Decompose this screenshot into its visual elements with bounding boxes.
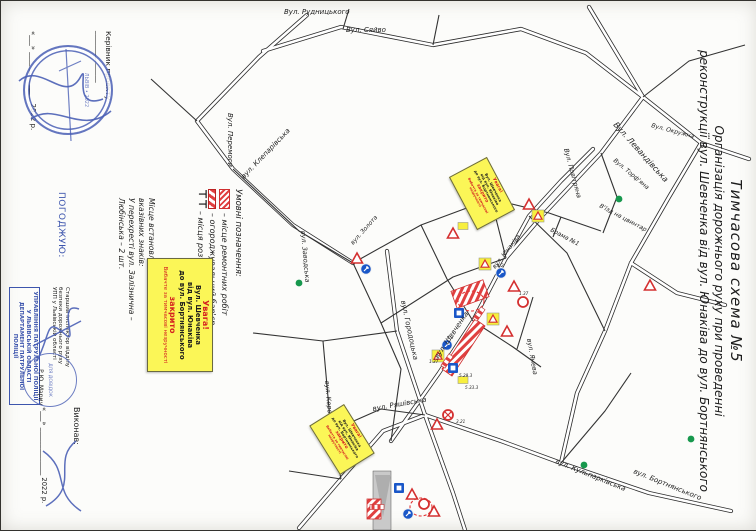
scheme-title: Тимчасова схема №5 bbox=[726, 36, 745, 506]
sign-code-label: 5.29.3 bbox=[459, 373, 473, 378]
round-seal-center-text: ЛЬВІВ • 2022 bbox=[47, 69, 89, 111]
sign-code-label: 1.37 bbox=[429, 359, 439, 364]
warning-box-legend: Увага!Вул. Шевченкавід вул. Юнаківадо ву… bbox=[147, 258, 213, 372]
traffic-sign-tw bbox=[509, 281, 520, 291]
sign-code-label: 4.2 bbox=[497, 263, 504, 268]
dovidok-round-stamp: ДЛЯ ДОВІДОК bbox=[23, 353, 77, 407]
traffic-sign-ty bbox=[532, 210, 544, 222]
street-label: Вул. Перемоги bbox=[226, 113, 234, 167]
legend-heading: Умовні позначення: bbox=[233, 189, 243, 339]
street-label: Брама №1 bbox=[549, 227, 580, 248]
traffic-sign-tw bbox=[429, 506, 440, 516]
traffic-sign-tw bbox=[645, 280, 656, 290]
street-label: вул. Кульпарківська bbox=[554, 457, 627, 493]
executor-date: «___» ______________ 2022 р. bbox=[40, 407, 48, 523]
sign-code-label: 4.2 bbox=[447, 335, 454, 340]
traffic-sign-tw bbox=[448, 228, 459, 238]
traffic-sign-ty bbox=[487, 313, 499, 325]
traffic-sign-tw bbox=[407, 489, 418, 499]
traffic-sign-sb bbox=[394, 483, 404, 493]
traffic-sign-cb bbox=[361, 264, 371, 274]
major-roads bbox=[197, 7, 749, 530]
round-seal-stamp: ЛЬВІВ • 2022 bbox=[23, 45, 113, 135]
sign-code-label: 5.33.3 bbox=[465, 385, 479, 390]
traffic-sign-tw bbox=[502, 326, 513, 336]
traffic-sign-gd bbox=[296, 280, 303, 287]
traffic-sign-tw bbox=[524, 199, 535, 209]
street-label: вул. Ряшівська bbox=[372, 396, 427, 413]
executor-block: Виконав: «___» ______________ 2022 р. bbox=[29, 407, 81, 523]
scheme-subtitle-1: Організація дорожнього руху при проведен… bbox=[711, 36, 726, 506]
traffic-sign-gd bbox=[616, 196, 623, 203]
traffic-sign-cb bbox=[496, 268, 506, 278]
warning-box-line: закрито bbox=[168, 259, 177, 371]
warning-box-line: Увага! bbox=[201, 259, 210, 371]
street-label: В'їзд на цвинтар bbox=[598, 203, 648, 234]
traffic-sign-cb bbox=[403, 509, 413, 519]
dz-symbol-icon bbox=[196, 189, 206, 207]
warning-box-line: Вибачте за тимчасові незручності bbox=[162, 259, 168, 371]
street-label: вул. Юнаківа bbox=[491, 233, 522, 270]
street-label: Вул. Сяйво bbox=[346, 26, 386, 34]
scheme-subtitle-2: реконструкції вул. Шевченка від вул. Юна… bbox=[696, 36, 711, 506]
street-label: Вул. Рудницького bbox=[284, 8, 350, 16]
legend-item-label: – місце ремонтних робіт bbox=[220, 213, 229, 315]
street-label: вул. Золота bbox=[349, 214, 379, 246]
scanned-traffic-scheme-page: Вул. РудницькогоВул. СяйвоВул. ПеремогиВ… bbox=[0, 0, 756, 531]
traffic-sign-ty bbox=[479, 258, 491, 270]
approval-label: ПОГОДЖУЮ: bbox=[50, 192, 66, 258]
street-label: вул. Заводська bbox=[299, 230, 311, 282]
traffic-sign-cx bbox=[443, 410, 453, 420]
warning-box-line: від вул. Юнаківа bbox=[185, 259, 193, 371]
sign-code-label: 1.37 bbox=[519, 291, 529, 296]
warning-box-line: до вул. Бортнянського bbox=[177, 259, 185, 371]
repair-symbol-icon bbox=[219, 189, 230, 209]
traffic-sign-cr bbox=[518, 297, 528, 307]
traffic-sign-bar bbox=[370, 505, 384, 510]
sign-code-label: 3.21 bbox=[456, 419, 466, 424]
executor-label: Виконав: bbox=[72, 407, 81, 523]
barrier-symbol-icon bbox=[209, 189, 217, 209]
warning-box-line: Вул. Шевченка bbox=[193, 259, 201, 371]
legend-item: – місце ремонтних робіт bbox=[219, 189, 230, 339]
street-label: вул. Клепарівська bbox=[240, 127, 292, 181]
traffic-sign-sb bbox=[448, 363, 458, 373]
scheme-title-block: Тимчасова схема №5 Організація дорожньог… bbox=[681, 36, 745, 506]
traffic-sign-cr bbox=[419, 499, 429, 509]
traffic-sign-yp bbox=[458, 223, 468, 230]
